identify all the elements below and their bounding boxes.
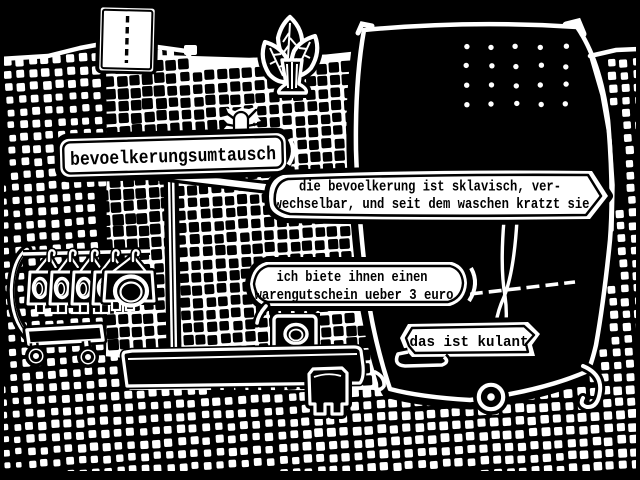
svg-text:das ist kulant: das ist kulant [410, 334, 529, 351]
svg-text:ich biete ihnen einen: ich biete ihnen einen [277, 269, 428, 286]
svg-text:warengutschein ueber 3 euro: warengutschein ueber 3 euro [255, 287, 454, 304]
svg-text:wechselbar, und seit dem wasch: wechselbar, und seit dem waschen kratzt … [275, 196, 590, 213]
svg-text:die bevoelkerung ist sklavisch: die bevoelkerung ist sklavisch, ver- [299, 179, 561, 196]
